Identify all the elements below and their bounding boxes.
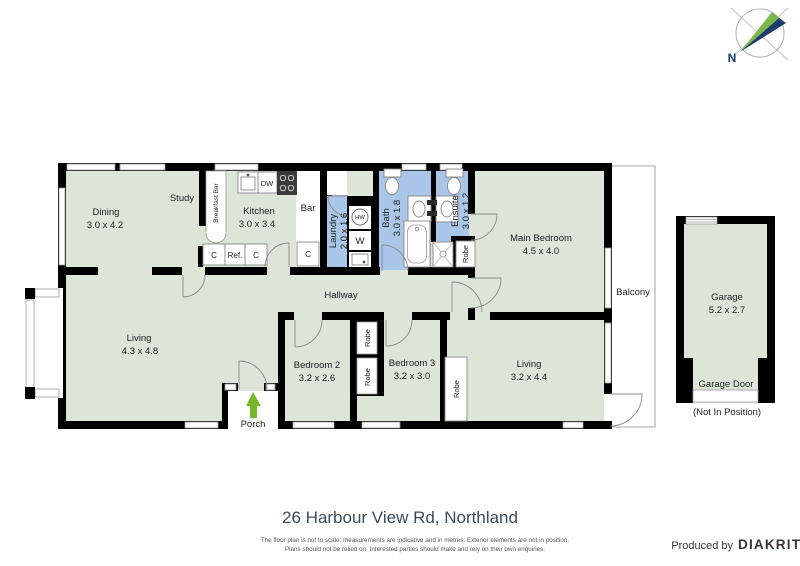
footer: 26 Harbour View Rd, Northland The floor … [261, 508, 800, 553]
label-bath: Bath [381, 208, 392, 228]
floor-plan-svg: N [0, 0, 800, 566]
label-robe-living: Robe [452, 380, 461, 398]
shower-icon [433, 242, 453, 267]
label-bar: Bar [301, 203, 316, 214]
label-fridge: Ref. [228, 251, 243, 260]
label-living: Living [127, 333, 152, 344]
label-cupboard-1: C [211, 251, 217, 260]
label-living2: Living [517, 359, 542, 370]
tap-icon [427, 211, 437, 216]
compass-north-label: N [728, 51, 737, 65]
label-bedroom2-dims: 3.2 x 2.6 [299, 373, 335, 384]
label-main-bedroom: Main Bedroom [510, 233, 572, 244]
disclaimer-line1: The floor plan is not to scale; measurem… [261, 537, 570, 544]
label-garage: Garage [711, 292, 743, 303]
bathtub-icon [404, 221, 430, 267]
tap-icon [427, 200, 437, 205]
stove-icon [277, 171, 297, 195]
bath-vanity-icon [408, 196, 431, 222]
label-living2-dims: 3.2 x 4.4 [511, 372, 547, 383]
label-dishwasher: DW [261, 179, 274, 188]
label-study: Study [170, 193, 195, 204]
label-bedroom3-dims: 3.2 x 3.0 [394, 371, 430, 382]
label-breakfast-bar: Breakfast Bar [213, 182, 220, 222]
label-balcony: Balcony [616, 287, 650, 298]
brand-logo: DIAKRIT [738, 537, 800, 552]
label-porch: Porch [241, 419, 266, 430]
label-hot-water: HW [355, 215, 365, 221]
label-ensuite: Ensuite [450, 195, 461, 227]
compass-icon: N [728, 8, 788, 65]
label-cupboard-bar: C [305, 250, 311, 259]
label-dining-dims: 3.0 x 4.2 [87, 220, 123, 231]
label-robe-bed2: Robe [363, 368, 372, 386]
label-garage-door: Garage Door [699, 379, 754, 390]
floor-plan-page: N [0, 0, 800, 566]
produced-by-text: Produced by [671, 540, 733, 552]
label-bath-dims: 3.0 x 1.8 [392, 200, 403, 236]
disclaimer-line2: Plans should not be relied on. Intereste… [285, 546, 545, 553]
label-washer: W [356, 236, 365, 247]
label-dining: Dining [93, 207, 120, 218]
garage-door [693, 390, 758, 402]
label-laundry-dims: 2.0 x 1.6 [339, 213, 350, 249]
label-living-dims: 4.3 x 4.8 [122, 346, 158, 357]
label-cupboard-2: C [253, 251, 259, 260]
label-garage-dims: 5.2 x 2.7 [709, 305, 745, 316]
label-main-bedroom-dims: 4.5 x 4.0 [523, 246, 559, 257]
sink-icon [238, 172, 258, 193]
bay-window [25, 288, 63, 399]
label-kitchen: Kitchen [243, 206, 275, 217]
label-hallway: Hallway [324, 290, 358, 301]
label-robe-main: Robe [461, 245, 470, 263]
laundry-tub-icon [352, 254, 368, 265]
garage-step [686, 217, 717, 224]
label-bedroom2: Bedroom 2 [294, 360, 340, 371]
label-laundry: Laundry [328, 214, 339, 249]
label-ensuite-dims: 3.0 x 1.2 [461, 193, 472, 229]
label-bedroom3: Bedroom 3 [389, 358, 435, 369]
label-robe-bed3: Robe [363, 329, 372, 347]
label-garage-door-note: (Not In Position) [693, 407, 761, 418]
label-kitchen-dims: 3.0 x 3.4 [239, 219, 275, 230]
page-title: 26 Harbour View Rd, Northland [282, 508, 518, 527]
